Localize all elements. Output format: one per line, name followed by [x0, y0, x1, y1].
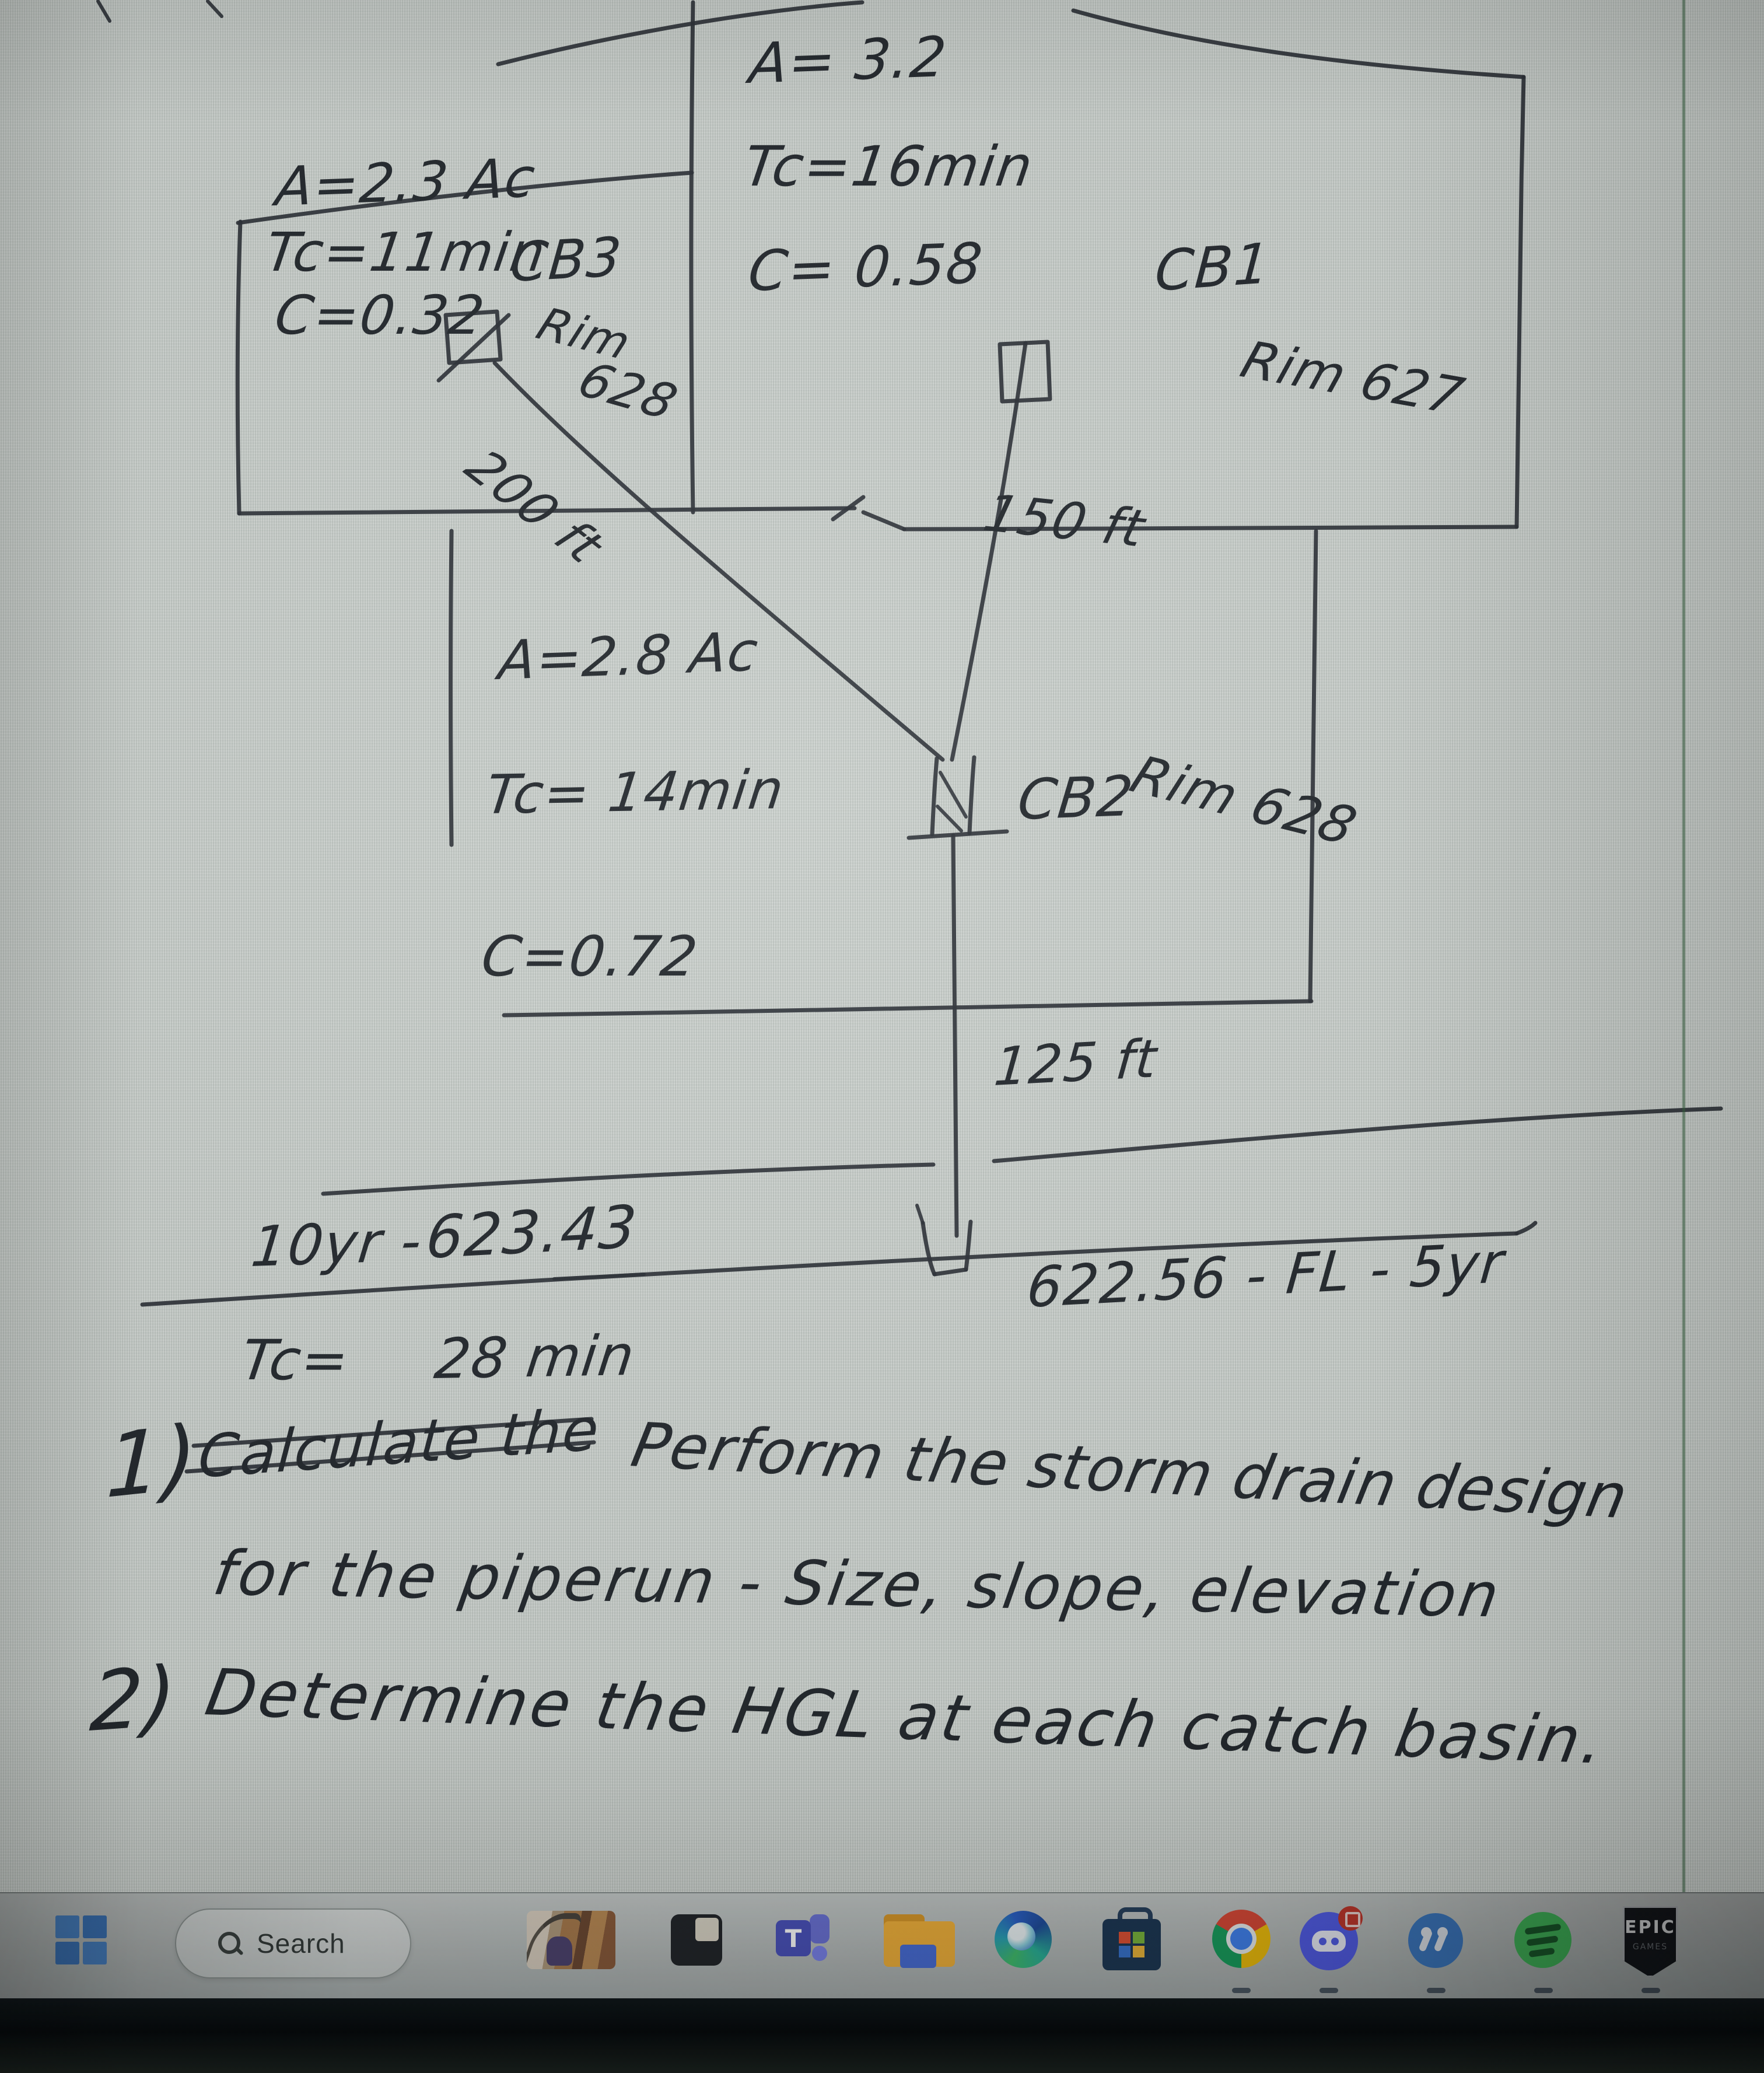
basin1-name-label: CB1	[1153, 230, 1272, 304]
basin3-area-label: A=2.3 Ac	[270, 146, 539, 219]
basin3-c-label: C=0.32	[271, 284, 489, 346]
value-underline	[554, 1274, 644, 1279]
stray-ink-mark	[98, 1, 110, 21]
basin2-rim-label: Rim 628	[1122, 745, 1366, 857]
search-icon	[218, 1932, 242, 1955]
basin1-rim-label: Rim 627	[1234, 330, 1471, 427]
basin1-top-curve-right	[1073, 11, 1524, 77]
search-label: Search	[257, 1928, 345, 1959]
basin3-rim-value: 628	[570, 351, 687, 431]
pipe-cb1-length-label: 150 ft	[978, 483, 1152, 558]
problem2-number: 2)	[87, 1648, 180, 1750]
windows-taskbar: Search T	[0, 1892, 1764, 1999]
photos-app-icon[interactable]	[527, 1911, 615, 1969]
pipe-outfall-length-label: 125 ft	[992, 1028, 1161, 1098]
cb2-hatch	[940, 772, 966, 817]
channel-line-lower-tick	[1517, 1223, 1535, 1233]
basin2-area-label: A=2.8 Ac	[493, 620, 762, 693]
channel-line-upper-left	[323, 1165, 933, 1194]
problem1-struck-text: Calculate the	[196, 1395, 601, 1491]
blue-circle-app-icon[interactable]	[1408, 1913, 1463, 1968]
dark-window-app-icon[interactable]	[671, 1914, 722, 1966]
outfall-symbol	[917, 1205, 923, 1223]
edge-browser-icon[interactable]	[995, 1911, 1052, 1968]
pipe-cb2-to-outfall	[953, 836, 957, 1236]
basin1-area-label: A= 3.2	[743, 24, 950, 96]
basin1-c-label: C= 0.58	[745, 230, 986, 304]
outfall-symbol	[966, 1222, 971, 1270]
problem1-text: Perform the storm drain design	[626, 1409, 1634, 1532]
spotify-running-indicator	[1534, 1988, 1553, 1993]
basin3-name-label: CB3	[508, 225, 625, 294]
cb2-structure-base	[909, 831, 1007, 838]
basin2-name-label: CB2	[1015, 763, 1137, 833]
basin1-tc-label: Tc=16min	[740, 134, 1038, 198]
problem1-continuation: for the piperun - Size, slope, elevation	[209, 1537, 1506, 1631]
center-divider-line	[691, 2, 693, 512]
microsoft-store-icon[interactable]	[1102, 1907, 1161, 1971]
pipe-cb3-length-label: 200 ft	[454, 440, 616, 574]
problem2-text: Determine the HGL at each catch basin.	[200, 1655, 1612, 1778]
basin2-box-bottom	[504, 1001, 1311, 1015]
basin3-rim-word: Rim	[530, 298, 639, 370]
windows-logo-icon	[55, 1915, 107, 1964]
basin2-c-label: C=0.72	[478, 924, 702, 988]
basin2-tc-label: Tc= 14min	[482, 758, 787, 826]
file-explorer-icon[interactable]	[884, 1914, 955, 1968]
chrome-icon[interactable]	[1212, 1910, 1270, 1968]
screen-bottom-bezel	[0, 1998, 1764, 2073]
epic-running-indicator	[1641, 1988, 1660, 1993]
teams-icon[interactable]: T	[776, 1912, 832, 1966]
cb2-structure-icon	[970, 757, 974, 833]
basin2-box-right	[1310, 531, 1316, 1001]
channel-line-upper-right	[994, 1109, 1721, 1161]
taskbar-search[interactable]: Search	[175, 1908, 411, 1978]
note-tc-value: 28 min	[431, 1323, 639, 1392]
start-button[interactable]	[55, 1915, 107, 1964]
discord-icon[interactable]	[1300, 1912, 1358, 1970]
outfall-symbol	[923, 1223, 935, 1274]
cb2-structure-icon	[932, 758, 937, 834]
problem1-number: 1)	[104, 1406, 199, 1518]
discord-notification-badge	[1338, 1906, 1363, 1931]
notes-canvas: A=2.3 Ac Tc=11min CB3 C=0.32 Rim 628 200…	[0, 0, 1764, 1892]
basin1-box-right	[1517, 77, 1524, 527]
epic-games-icon[interactable]: EPIC GAMES	[1623, 1906, 1678, 1977]
basin3-box-left	[237, 222, 240, 513]
bottom-line-jog	[863, 512, 904, 529]
spotify-icon[interactable]	[1514, 1912, 1571, 1968]
outfall-elevation-label: 622.56 - FL - 5yr	[1024, 1230, 1509, 1320]
note-10yr-value: 623.43	[423, 1193, 640, 1272]
page-edge-seam	[1682, 0, 1685, 1892]
photographed-desktop: A=2.3 Ac Tc=11min CB3 C=0.32 Rim 628 200…	[0, 0, 1764, 2073]
note-tc-label: Tc=	[237, 1327, 354, 1392]
note-10yr-label: 10yr -	[249, 1208, 426, 1280]
handwritten-diagram: A=2.3 Ac Tc=11min CB3 C=0.32 Rim 628 200…	[0, 0, 1764, 1892]
discord-running-indicator	[1319, 1988, 1338, 1993]
pipe-cb1-to-cb2	[952, 343, 1025, 760]
basin2-box-left	[451, 531, 452, 845]
outfall-symbol	[935, 1270, 966, 1274]
chrome-running-indicator	[1232, 1988, 1251, 1993]
cb2-hatch	[937, 806, 961, 831]
basin3-tc-label: Tc=11min	[262, 221, 550, 283]
stray-ink-mark	[208, 1, 222, 16]
blue-app-running-indicator	[1427, 1988, 1445, 1993]
